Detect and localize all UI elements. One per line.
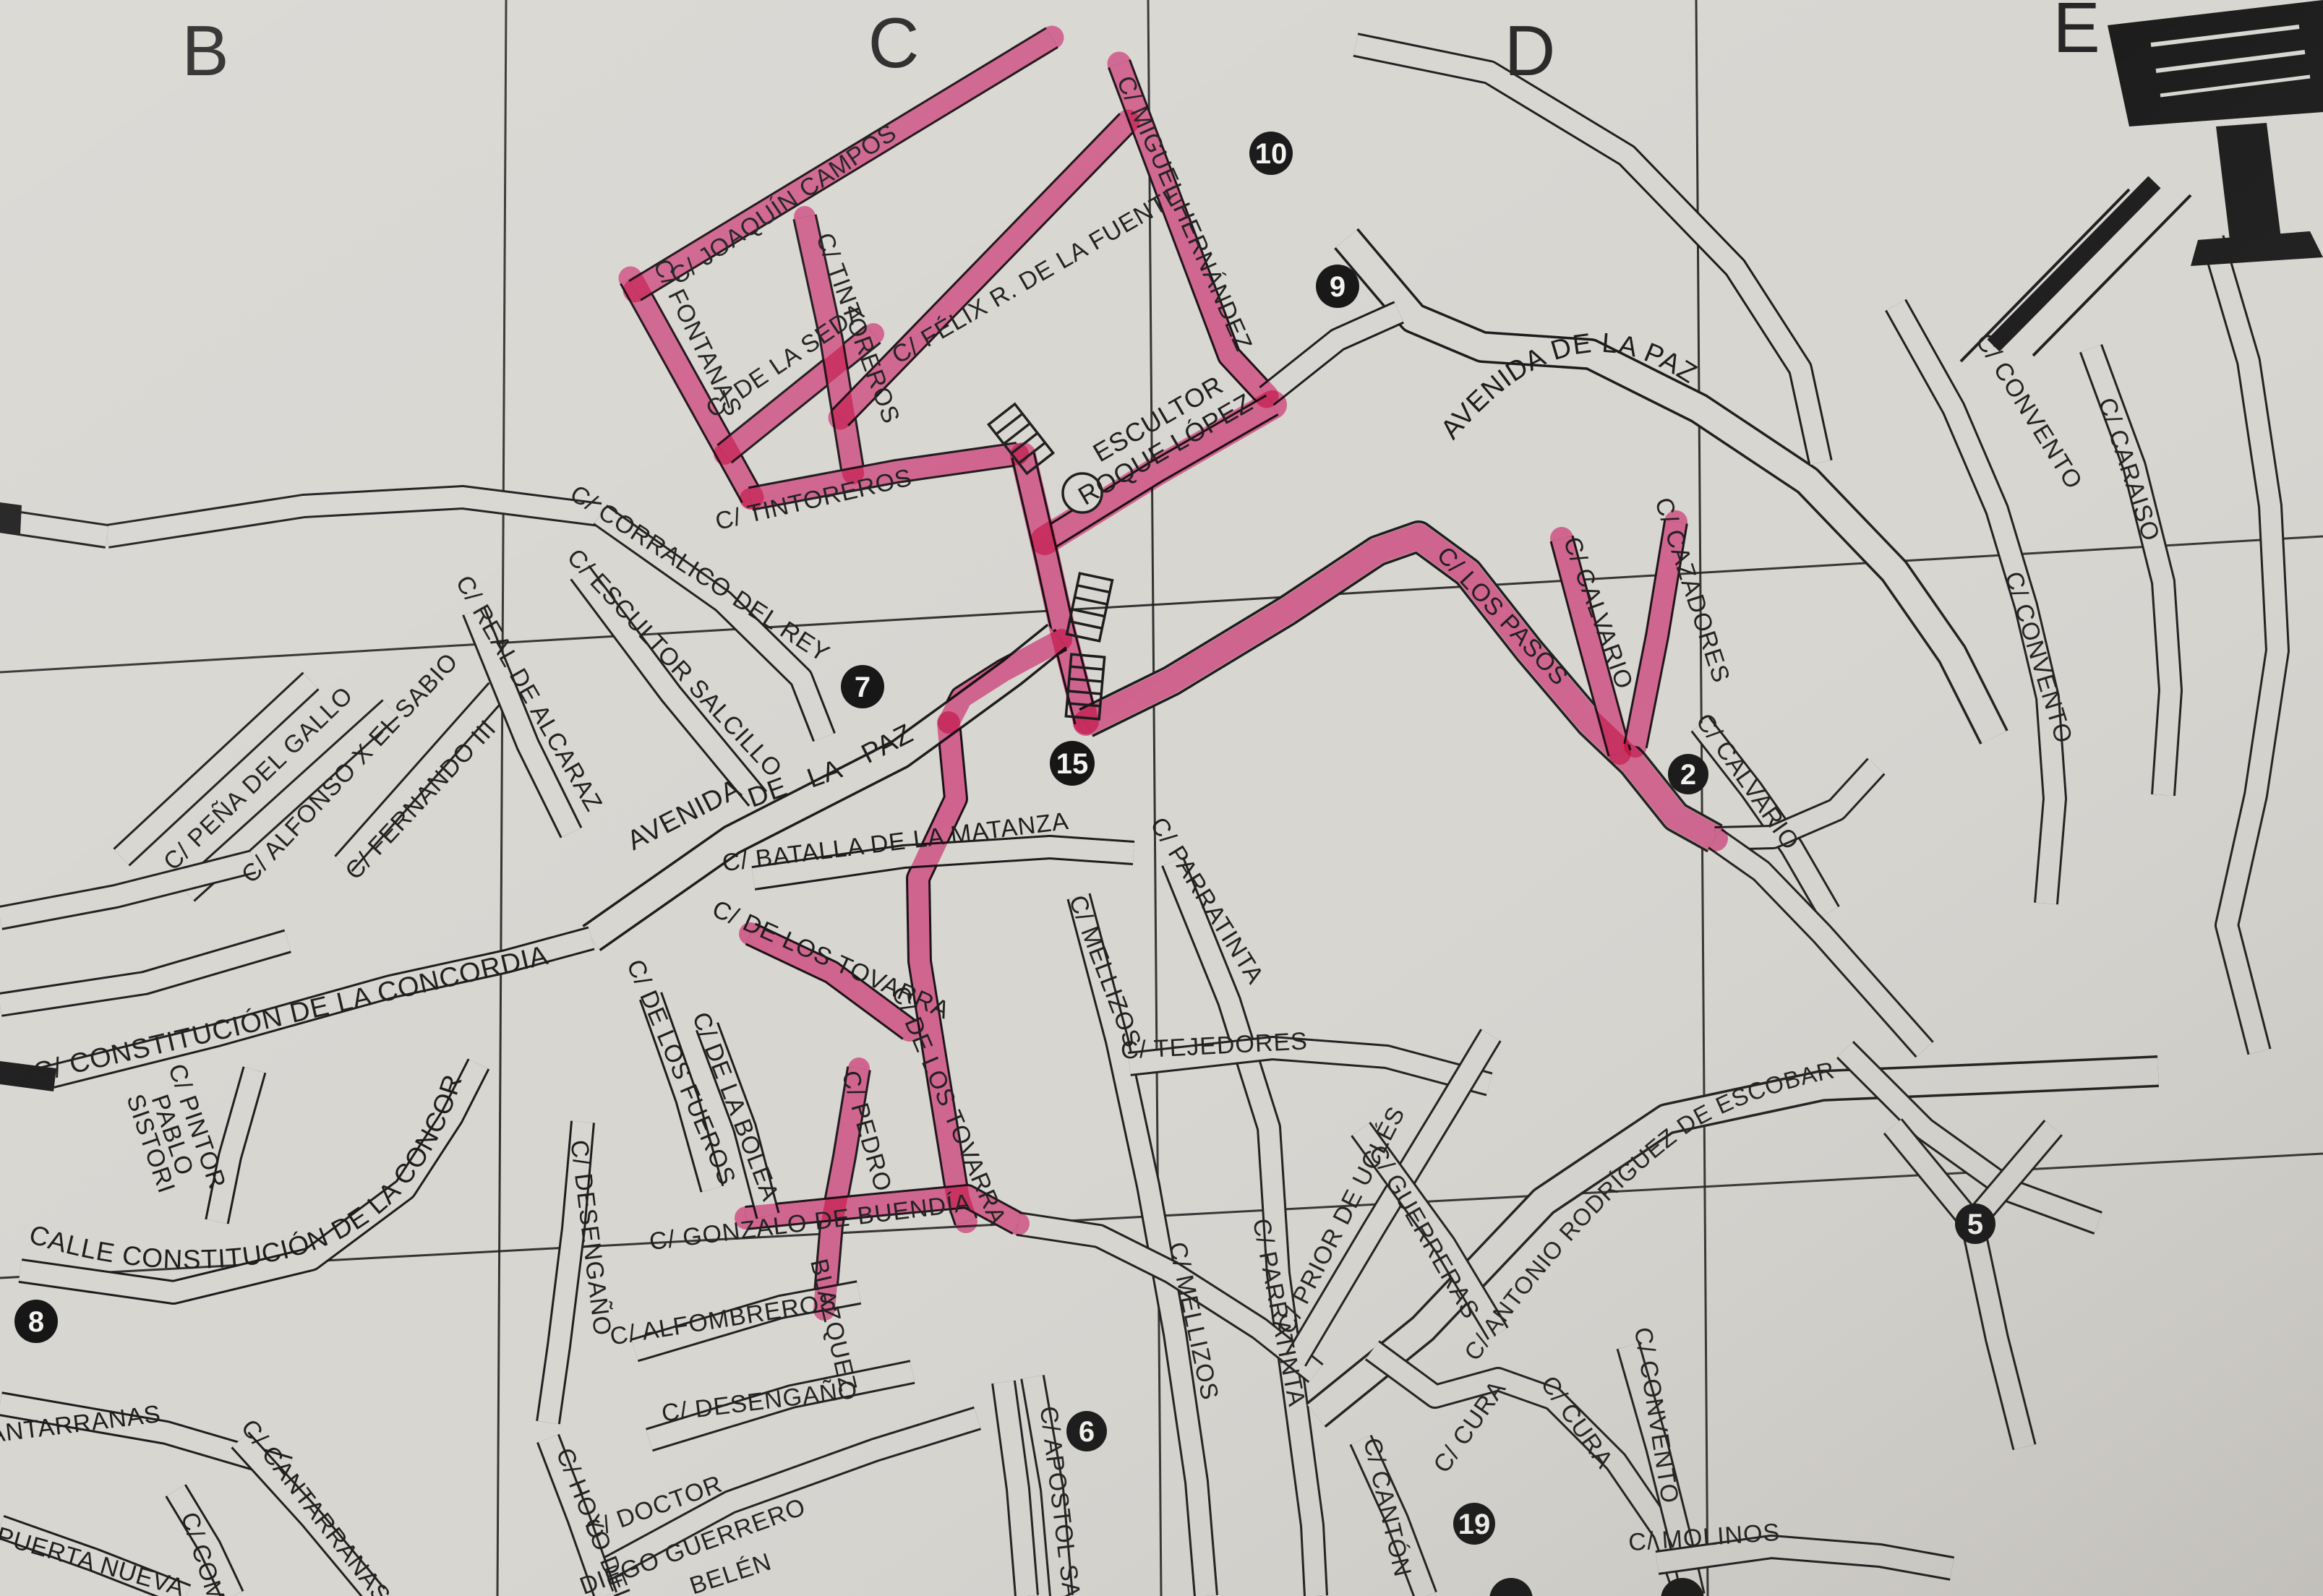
- grid-letter: C: [868, 3, 920, 82]
- black-building-square: [0, 502, 22, 534]
- poi-marker-number: 7: [855, 672, 870, 703]
- poi-marker: 10: [1249, 132, 1293, 175]
- poi-marker: 2: [1668, 754, 1708, 794]
- poi-marker: 6: [1066, 1411, 1107, 1451]
- poi-marker-number: 6: [1079, 1416, 1095, 1448]
- poi-marker-number: 15: [1056, 748, 1089, 780]
- map-canvas: C/ JOAQUÍN CAMPOSC/ FONTANASC/ DE LA SED…: [0, 0, 2323, 1596]
- poi-marker-number: 19: [1458, 1509, 1491, 1540]
- poi-marker-number: 2: [1680, 759, 1696, 791]
- poi-marker: 15: [1050, 741, 1095, 786]
- poi-marker: 7: [841, 665, 884, 708]
- poi-marker: 5: [1955, 1204, 1995, 1244]
- poi-marker-number: 8: [28, 1306, 44, 1338]
- grid-letter: B: [181, 11, 228, 90]
- poi-marker-number: 5: [1967, 1209, 1983, 1240]
- paper-background: [0, 0, 2323, 1596]
- grid-letter: E: [2053, 0, 2100, 67]
- grid-letter: D: [1505, 11, 1556, 90]
- town-map-photo: C/ JOAQUÍN CAMPOSC/ FONTANASC/ DE LA SED…: [0, 0, 2323, 1596]
- poi-marker: 19: [1453, 1503, 1495, 1545]
- poi-marker: 8: [14, 1300, 58, 1343]
- poi-marker-number: 9: [1330, 271, 1346, 303]
- poi-marker-number: 10: [1255, 138, 1288, 170]
- poi-marker: 9: [1316, 265, 1359, 308]
